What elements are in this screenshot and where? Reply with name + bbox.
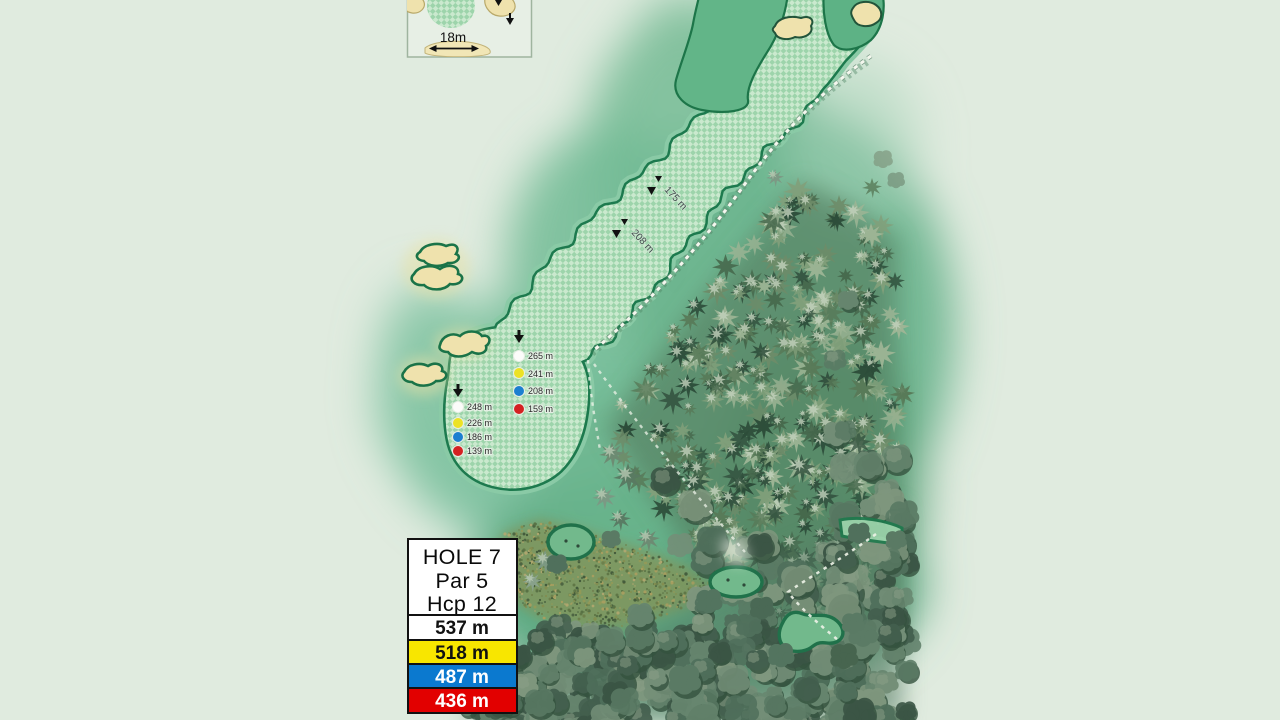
- svg-text:265 m: 265 m: [528, 351, 553, 361]
- svg-text:226 m: 226 m: [467, 418, 492, 428]
- svg-text:537 m: 537 m: [435, 618, 489, 639]
- svg-text:Hcp 12: Hcp 12: [427, 592, 497, 616]
- svg-text:518 m: 518 m: [435, 643, 489, 664]
- svg-text:186 m: 186 m: [467, 432, 492, 442]
- svg-text:208 m: 208 m: [528, 386, 553, 396]
- svg-text:HOLE 7: HOLE 7: [423, 545, 501, 569]
- svg-text:248 m: 248 m: [467, 402, 492, 412]
- svg-text:487 m: 487 m: [435, 667, 489, 688]
- svg-text:241 m: 241 m: [528, 369, 553, 379]
- svg-text:159 m: 159 m: [528, 404, 553, 414]
- svg-text:Par 5: Par 5: [436, 569, 489, 593]
- svg-text:139 m: 139 m: [467, 446, 492, 456]
- svg-text:18m: 18m: [440, 30, 466, 45]
- svg-text:436 m: 436 m: [435, 691, 489, 712]
